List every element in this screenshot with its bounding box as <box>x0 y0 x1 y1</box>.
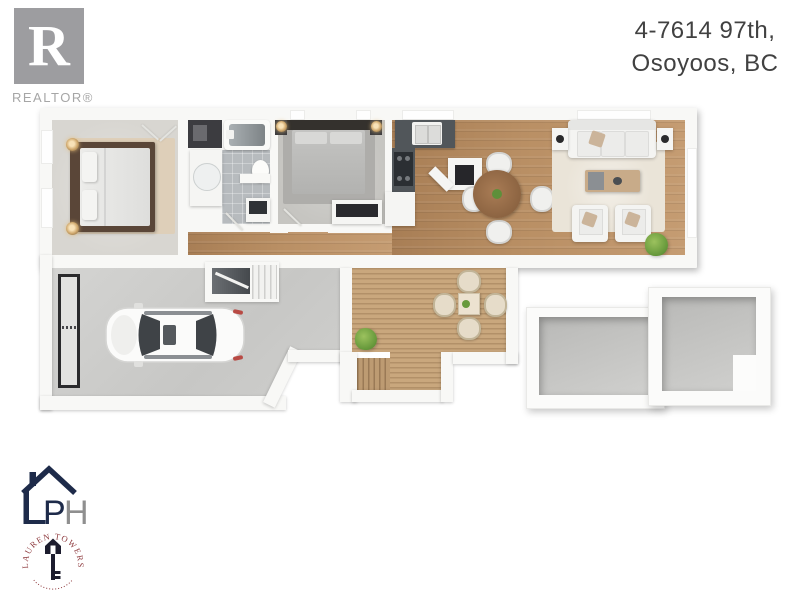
stove-burner-3 <box>397 176 402 181</box>
stove-burner-2 <box>405 156 410 161</box>
bedroom2-lamp-right <box>371 121 382 132</box>
patio-chair-right <box>484 293 507 317</box>
coffee-table-decor <box>613 177 622 185</box>
realtor-logo-block: R <box>14 8 84 84</box>
storage-box-2-notch <box>733 355 756 391</box>
car-side-window-bottom <box>144 355 212 359</box>
dining-chair-right <box>530 186 554 212</box>
bedroom2-window-1 <box>290 110 305 120</box>
bedroom2-pillow-2 <box>330 132 362 144</box>
garage-wall-bottom <box>40 396 286 410</box>
bathroom-vanity <box>190 150 222 206</box>
car-windshield <box>139 314 161 356</box>
address-line-1: 4-7614 97th, <box>620 14 790 47</box>
key-icon <box>45 539 61 581</box>
bedroom2-dresser <box>332 200 382 224</box>
bedroom2-headboard <box>287 120 370 130</box>
master-bed-pillow-2 <box>82 190 97 220</box>
seal-tagline-arc <box>34 580 72 589</box>
master-bed-mattress <box>80 148 150 226</box>
bedroom2-window-2 <box>356 110 371 120</box>
bedroom2-mattress <box>292 130 365 194</box>
deck-plant <box>355 328 377 350</box>
closet-interior <box>188 120 222 148</box>
car-side-window-top <box>144 311 212 315</box>
key-tooth-2 <box>55 576 61 579</box>
stove-burner-1 <box>397 156 402 161</box>
kitchen-sink-basin-1 <box>415 125 428 144</box>
storage-box-2-floor <box>662 297 756 391</box>
car-sunroof <box>163 325 176 345</box>
sofa-cushion-3 <box>625 131 649 157</box>
garage-wall-left <box>40 255 52 410</box>
storage-box-1-floor <box>539 317 651 395</box>
bathroom-half-wall <box>240 174 270 183</box>
patio-table <box>458 293 480 315</box>
table-lamp-left <box>556 135 564 143</box>
key-tooth-1 <box>55 571 61 574</box>
garage-door-handle-dots <box>62 326 76 329</box>
garage-door <box>58 274 80 388</box>
key-stem <box>51 554 55 580</box>
car <box>100 300 250 370</box>
master-lamp-bottom <box>66 222 79 235</box>
fireplace-opening <box>455 165 474 185</box>
armchair-2 <box>615 205 651 242</box>
kitchen-stove <box>394 152 413 186</box>
ph-house-logo: P H <box>16 462 92 528</box>
kitchen-island <box>385 192 415 226</box>
car-mirror-bottom <box>134 361 143 367</box>
coffee-table <box>585 170 640 192</box>
kitchen-window <box>402 110 454 120</box>
realtor-logo-label: REALTOR® <box>12 90 107 105</box>
bathtub <box>224 120 270 150</box>
kitchen-counter-top <box>395 120 455 148</box>
master-lamp-top <box>66 138 79 151</box>
kitchen-counter-left <box>392 148 415 192</box>
upper-floor-unit <box>40 108 697 268</box>
master-bed-pillow-1 <box>82 152 97 182</box>
dining-table <box>473 170 521 218</box>
master-window-left-1 <box>41 130 53 164</box>
ph-logo-left-wall <box>24 491 30 524</box>
sofa <box>568 120 656 158</box>
patio-chair-bottom <box>457 317 481 340</box>
coffee-table-tray <box>588 172 604 190</box>
bathtub-basin <box>229 124 265 146</box>
patio-chair-left <box>433 293 456 317</box>
patio-chair-top <box>457 270 481 293</box>
deck-right-wall <box>506 268 518 364</box>
dining-chair-bottom <box>486 220 512 244</box>
patio-table-plant <box>462 300 470 308</box>
master-bed-duvet-fold <box>104 148 106 226</box>
kitchen-sink-basin-2 <box>428 125 441 144</box>
master-bed-frame <box>70 142 155 232</box>
stairwell-opening <box>212 268 250 294</box>
side-table-right <box>657 128 673 150</box>
bathtub-faucet <box>226 130 234 139</box>
bathroom-cabinet-shelf <box>249 201 267 214</box>
master-window-left-2 <box>41 188 53 228</box>
kitchen-sink <box>412 122 442 145</box>
living-window-top <box>577 110 651 120</box>
ph-logo-letter-h: H <box>64 494 89 528</box>
stairwell-treads <box>252 265 277 299</box>
deck-floor-extension <box>390 352 441 390</box>
deck-bottom-wall <box>352 390 443 402</box>
car-rear-window <box>196 314 217 356</box>
storage-box-1 <box>526 307 665 409</box>
hallway-floor <box>188 232 392 255</box>
bedroom2-lamp-left <box>276 121 287 132</box>
key-bow-door <box>51 546 56 555</box>
garage-deck-separator-wall <box>340 268 352 364</box>
bedroom2-pillow-1 <box>295 132 327 144</box>
deck-extension-right-wall <box>441 352 453 402</box>
stove-burner-4 <box>405 176 410 181</box>
deck-stairs <box>357 358 390 390</box>
storage-box-2 <box>648 287 771 406</box>
car-mirror-top <box>134 303 143 309</box>
address-line-2: Osoyoos, BC <box>620 47 790 80</box>
car-hood-shading <box>111 315 137 355</box>
lauren-towers-seal: LAUREN TOWERS <box>20 527 86 597</box>
stairwell-enclosure <box>205 262 279 302</box>
listing-address: 4-7614 97th, Osoyoos, BC <box>620 14 790 80</box>
living-plant <box>645 233 668 256</box>
bedroom2-dresser-top <box>336 204 378 217</box>
armchair-1 <box>572 205 608 242</box>
sofa-back <box>568 120 656 130</box>
dining-centerpiece-plant <box>492 189 502 199</box>
bathroom-cabinet <box>246 198 270 222</box>
table-lamp-right <box>661 135 669 143</box>
realtor-r-glyph: R <box>28 17 70 75</box>
side-table-left <box>552 128 568 150</box>
realtor-logo: R REALTOR® <box>12 8 107 103</box>
bathroom-sink-mirror <box>193 163 221 191</box>
garage-door-panel <box>61 277 77 385</box>
stairwell-railing <box>215 272 249 289</box>
hall-wall-stub-1 <box>270 224 288 233</box>
closet-shelf-item <box>193 125 207 141</box>
living-window-right <box>687 148 697 238</box>
ph-logo-letter-p: P <box>43 494 66 528</box>
hall-wall-stub-2 <box>328 224 392 233</box>
